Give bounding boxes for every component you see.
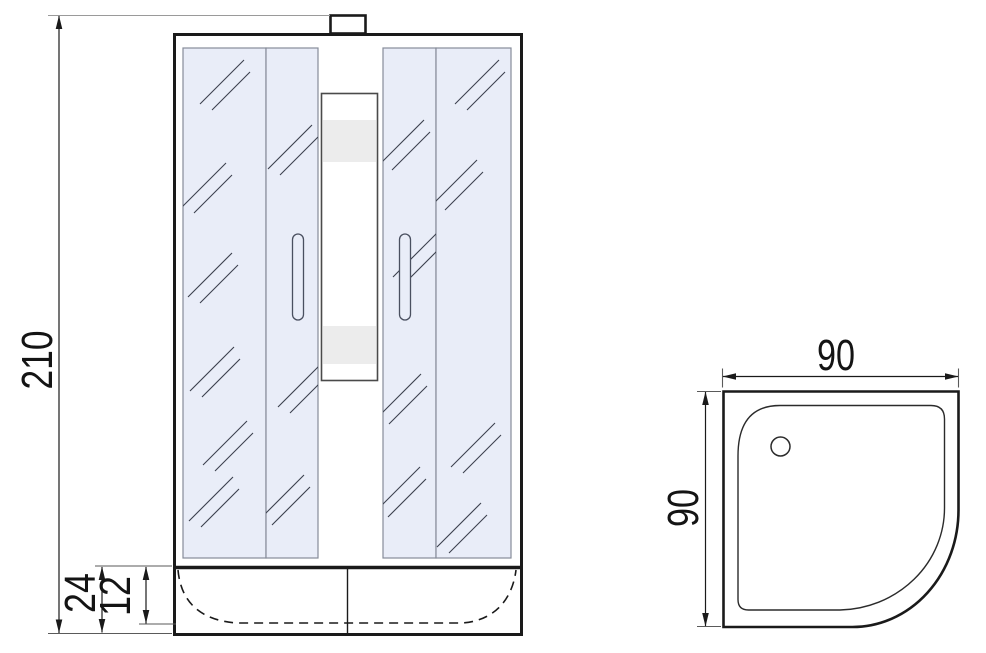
door-handle-right [400,234,411,320]
glass-panel-1 [183,48,266,558]
arrowhead-210-top [56,16,63,30]
glass-panel-4 [436,48,511,558]
dimension-label-210: 210 [13,331,62,390]
front-view [173,16,523,635]
tray-outer-outline [724,392,959,628]
arrowhead-90d-top [702,392,709,406]
column-band-lower [323,326,376,364]
arrowhead-12-top [143,567,150,581]
arrowhead-24-bottom [99,619,106,633]
door-handle-left [293,234,304,320]
tray-top-view [724,392,959,628]
technical-drawing-canvas: 210 24 12 90 90 [0,0,986,653]
dimension-label-90-width: 90 [817,331,855,380]
arrowhead-90w-right [945,373,959,380]
arrowhead-90w-left [723,373,737,380]
dimension-label-90-depth: 90 [659,489,708,527]
arrowhead-90d-bottom [702,613,709,627]
arrowhead-12-bottom [143,610,150,624]
shower-cabin-dimension-drawing: 210 24 12 90 90 [0,0,986,653]
column-band-upper [323,120,376,162]
arrowhead-210-bottom [56,620,63,634]
dimension-label-12: 12 [91,576,140,616]
roof-box [331,16,366,34]
